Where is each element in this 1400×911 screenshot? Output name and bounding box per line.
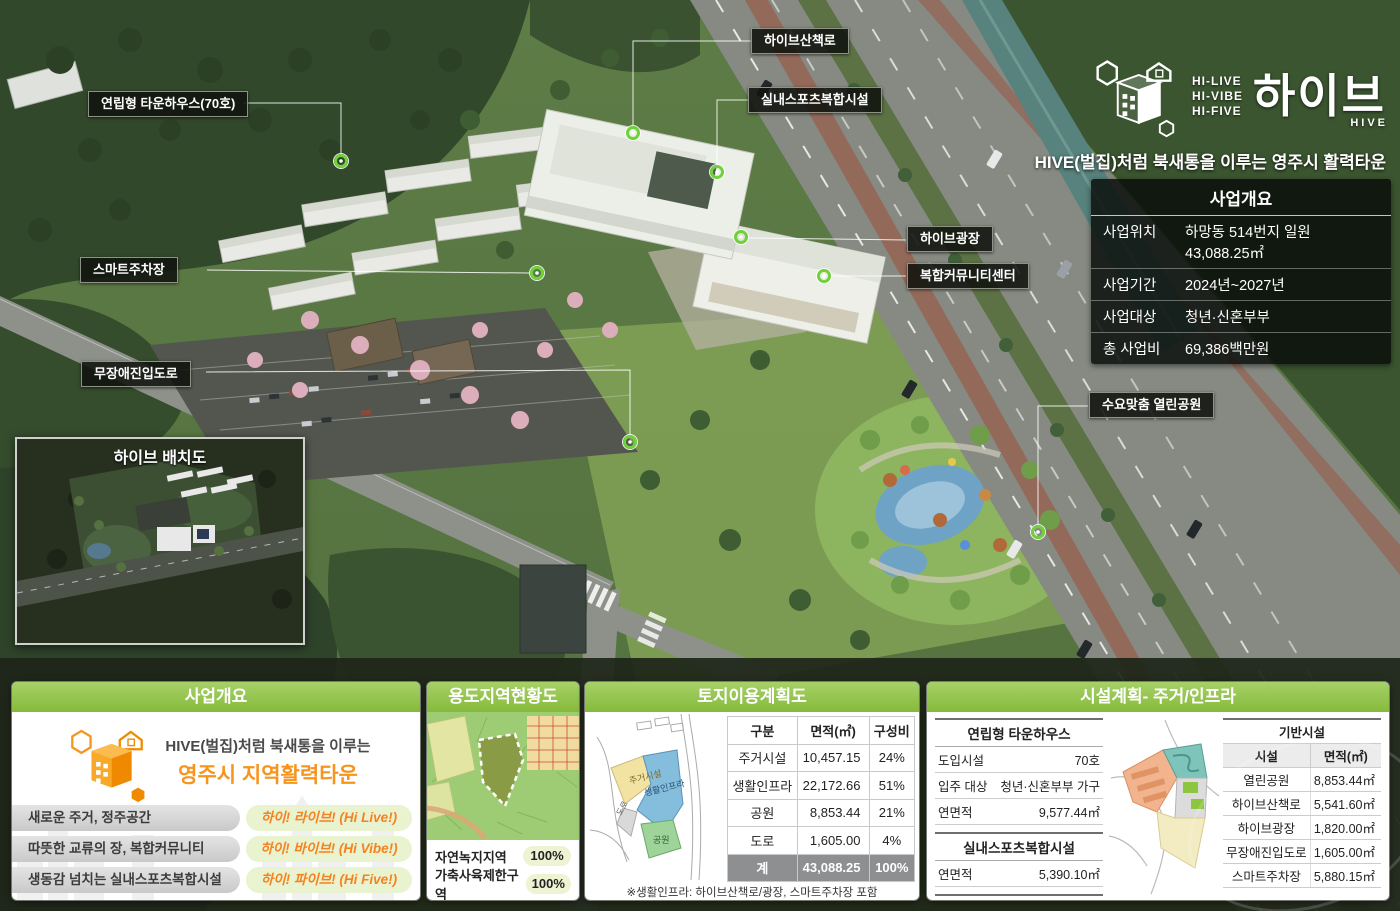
facilities-tables: 연립형 타운하우스 도입시설70호 입주 대상청년·신혼부부 가구 연면적9,5… bbox=[927, 712, 1107, 900]
overview-row-location: 사업위치하망동 514번지 일원 43,088.25㎡ bbox=[1091, 216, 1391, 268]
overview-intro-line1: HIVE(벌집)처럼 북새통을 이루는 bbox=[165, 735, 370, 756]
hive-logo-icon bbox=[1086, 52, 1182, 140]
tagline: HIVE(벌집)처럼 북새통을 이루는 영주시 활력타운 bbox=[1035, 148, 1386, 173]
callout-open-park: 수요맞춤 열린공원 bbox=[1089, 392, 1214, 418]
overview-box-title: 사업개요 bbox=[1091, 179, 1391, 216]
landuse-row: 공원 8,853.44 21% bbox=[728, 799, 915, 827]
hi-vibe-text: HI-VIBE bbox=[1192, 89, 1243, 103]
zoning-value: 100% bbox=[523, 846, 571, 866]
feature-label: 새로운 주거, 정주공간 bbox=[12, 805, 240, 831]
infra-row: 하이브광장 1,820.00㎡ bbox=[1223, 816, 1381, 840]
sports-row: 연면적5,390.10㎡ bbox=[935, 861, 1103, 887]
landuse-diagram: 주거시설 생활인프라 도로 공원 bbox=[585, 712, 727, 882]
zoning-map bbox=[427, 712, 579, 840]
feature-slogan: 하이! 파이브! (Hi Five!) bbox=[246, 867, 412, 893]
site-plan-inset-title: 하이브 배치도 bbox=[17, 444, 303, 468]
hi-live-text: HI-LIVE bbox=[1192, 74, 1243, 88]
zoning-label: 가축사육제한구역 bbox=[435, 865, 526, 900]
infra-header-row: 시설 면적(㎡) bbox=[1223, 744, 1381, 768]
panel-landuse: 토지이용계획도 bbox=[585, 682, 919, 900]
overview-feature-row: 새로운 주거, 정주공간 하이! 라이브! (Hi Live!) bbox=[12, 805, 412, 831]
landuse-total-row: 계 43,088.25 100% bbox=[728, 854, 915, 882]
townhouse-table-title: 연립형 타운하우스 bbox=[935, 718, 1103, 747]
hi-five-text: HI-FIVE bbox=[1192, 104, 1243, 118]
zoning-value: 100% bbox=[526, 874, 571, 894]
callout-walkway: 하이브산책로 bbox=[751, 28, 849, 54]
landuse-zone-label: 공원 bbox=[653, 835, 670, 845]
townhouse-row: 연면적9,577.44㎡ bbox=[935, 799, 1103, 825]
overview-intro: HIVE(벌집)처럼 북새통을 이루는 영주시 지역활력타운 bbox=[12, 720, 420, 804]
feature-label: 생동감 넘치는 실내스포츠복합시설 bbox=[12, 867, 240, 893]
overview-intro-line2: 영주시 지역활력타운 bbox=[165, 759, 370, 789]
panel-landuse-title: 토지이용계획도 bbox=[585, 682, 919, 712]
landuse-footnote: ※생활인프라: 하이브산책로/광장, 스마트주차장 포함 bbox=[585, 884, 919, 900]
zoning-label: 자연녹지지역 bbox=[435, 847, 507, 866]
site-plan-inset: 하이브 배치도 bbox=[15, 437, 305, 645]
landuse-row: 생활인프라 22,172.66 51% bbox=[728, 772, 915, 800]
townhouse-row: 입주 대상청년·신혼부부 가구 bbox=[935, 773, 1103, 799]
overview-feature-row: 생동감 넘치는 실내스포츠복합시설 하이! 파이브! (Hi Five!) bbox=[12, 867, 412, 893]
infra-row: 무장애진입도로 1,605.00㎡ bbox=[1223, 840, 1381, 864]
callout-townhouse: 연립형 타운하우스(70호) bbox=[88, 91, 248, 117]
callout-plaza: 하이브광장 bbox=[907, 226, 993, 252]
landuse-row: 도로 1,605.00 4% bbox=[728, 827, 915, 855]
feature-slogan: 하이! 라이브! (Hi Live!) bbox=[246, 805, 412, 831]
overview-row-cost: 총 사업비69,386백만원 bbox=[1091, 332, 1391, 364]
callout-sports: 실내스포츠복합시설 bbox=[748, 87, 882, 113]
hive-logo-sublines: HI-LIVE HI-VIBE HI-FIVE bbox=[1192, 74, 1243, 118]
landuse-table: 구분 면적(㎡) 구성비 주거시설 10,457.15 24% 생활인프라 22… bbox=[727, 716, 915, 882]
panel-project-overview-title: 사업개요 bbox=[12, 682, 420, 712]
hive-logo-title-en: HIVE bbox=[1350, 118, 1388, 129]
infra-row: 스마트주차장 5,880.15㎡ bbox=[1223, 864, 1381, 888]
zoning-row: 가축사육제한구역 100% bbox=[427, 872, 579, 896]
sports-table-title: 실내스포츠복합시설 bbox=[935, 832, 1103, 861]
project-overview-box: 사업개요 사업위치하망동 514번지 일원 43,088.25㎡ 사업기간202… bbox=[1091, 179, 1391, 364]
facilities-diagram bbox=[1107, 716, 1221, 896]
hive-logo: HI-LIVE HI-VIBE HI-FIVE 하이브HIVE bbox=[1086, 52, 1386, 140]
panel-project-overview: 사업개요 bbox=[12, 682, 420, 900]
callout-community: 복합커뮤니티센터 bbox=[907, 263, 1029, 289]
panel-zoning-title: 용도지역현황도 bbox=[427, 682, 579, 712]
panel-facilities: 시설계획- 주거/인프라 연립형 타운하우스 도입시설70호 입주 대상청년·신… bbox=[927, 682, 1389, 900]
callout-parking: 스마트주차장 bbox=[80, 257, 178, 283]
infra-title-row: 기반시설 bbox=[1223, 719, 1381, 744]
infra-row: 열린공원 8,853.44㎡ bbox=[1223, 768, 1381, 792]
landuse-header-row: 구분 면적(㎡) 구성비 bbox=[728, 717, 915, 745]
community-table-title: 복합커뮤니티센터 bbox=[935, 894, 1103, 900]
callout-access-road: 무장애진입도로 bbox=[81, 361, 191, 387]
infra-row: 하이브산책로 5,541.60㎡ bbox=[1223, 792, 1381, 816]
panel-facilities-title: 시설계획- 주거/인프라 bbox=[927, 682, 1389, 712]
townhouse-row: 도입시설70호 bbox=[935, 747, 1103, 773]
overview-feature-row: 따뜻한 교류의 장, 복합커뮤니티 하이! 바이브! (Hi Vibe!) bbox=[12, 836, 412, 862]
feature-label: 따뜻한 교류의 장, 복합커뮤니티 bbox=[12, 836, 240, 862]
landuse-row: 주거시설 10,457.15 24% bbox=[728, 744, 915, 772]
overview-row-period: 사업기간2024년~2027년 bbox=[1091, 268, 1391, 300]
site-plan-inset-image bbox=[17, 439, 303, 643]
infra-table: 기반시설 시설 면적(㎡) 열린공원 8,853.44㎡ 하이브산책로 5, bbox=[1223, 718, 1381, 888]
feature-slogan: 하이! 바이브! (Hi Vibe!) bbox=[246, 836, 412, 862]
panel-zoning: 용도지역현황도 bbox=[427, 682, 579, 900]
hive-icon-orange bbox=[61, 720, 153, 804]
poster: 연립형 타운하우스(70호) 하이브산책로 실내스포츠복합시설 스마트주차장 하… bbox=[0, 0, 1400, 911]
overview-row-target: 사업대상청년·신혼부부 bbox=[1091, 300, 1391, 332]
hive-logo-title: 하이브HIVE bbox=[1253, 73, 1386, 119]
